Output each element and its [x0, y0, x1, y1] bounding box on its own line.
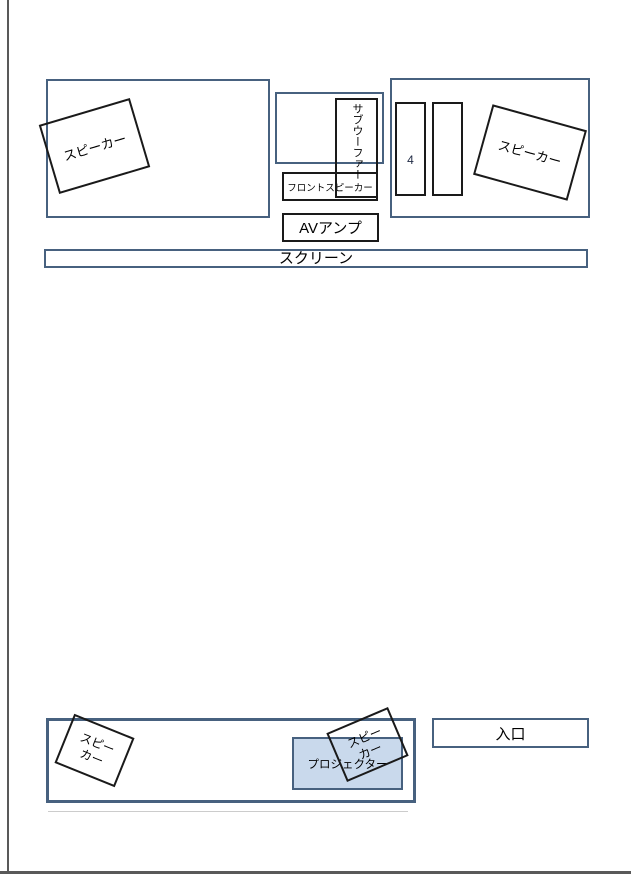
floor-plan-page: スピーカー 4 スピーカー フロントスピーカー AVアンプ サブウーファー スク…	[0, 0, 631, 879]
av-amp-label: AVアンプ	[299, 217, 362, 238]
page-left-border-line	[7, 0, 9, 874]
entrance-label: 入口	[495, 723, 525, 744]
equipment-rack-2	[432, 102, 463, 196]
equipment-rack-1: 4	[395, 102, 426, 196]
screen-bar: スクリーン	[44, 249, 588, 268]
speaker-top-left-label: スピーカー	[61, 128, 129, 165]
speaker-top-right-label: スピーカー	[496, 135, 564, 171]
speaker-bottom-left-label: スピー カー	[72, 730, 117, 771]
subwoofer-box: サブウーファー	[335, 98, 378, 198]
room-bottom-shadow-line	[48, 811, 408, 812]
speaker-bottom-center-label: スピー カー	[345, 724, 390, 766]
entrance-box: 入口	[432, 718, 589, 748]
subwoofer-label: サブウーファー	[350, 103, 363, 196]
page-bottom-border-line	[0, 871, 631, 874]
screen-label: スクリーン	[279, 251, 353, 266]
rack-1-label: 4	[407, 153, 414, 167]
av-amp-box: AVアンプ	[282, 213, 379, 242]
